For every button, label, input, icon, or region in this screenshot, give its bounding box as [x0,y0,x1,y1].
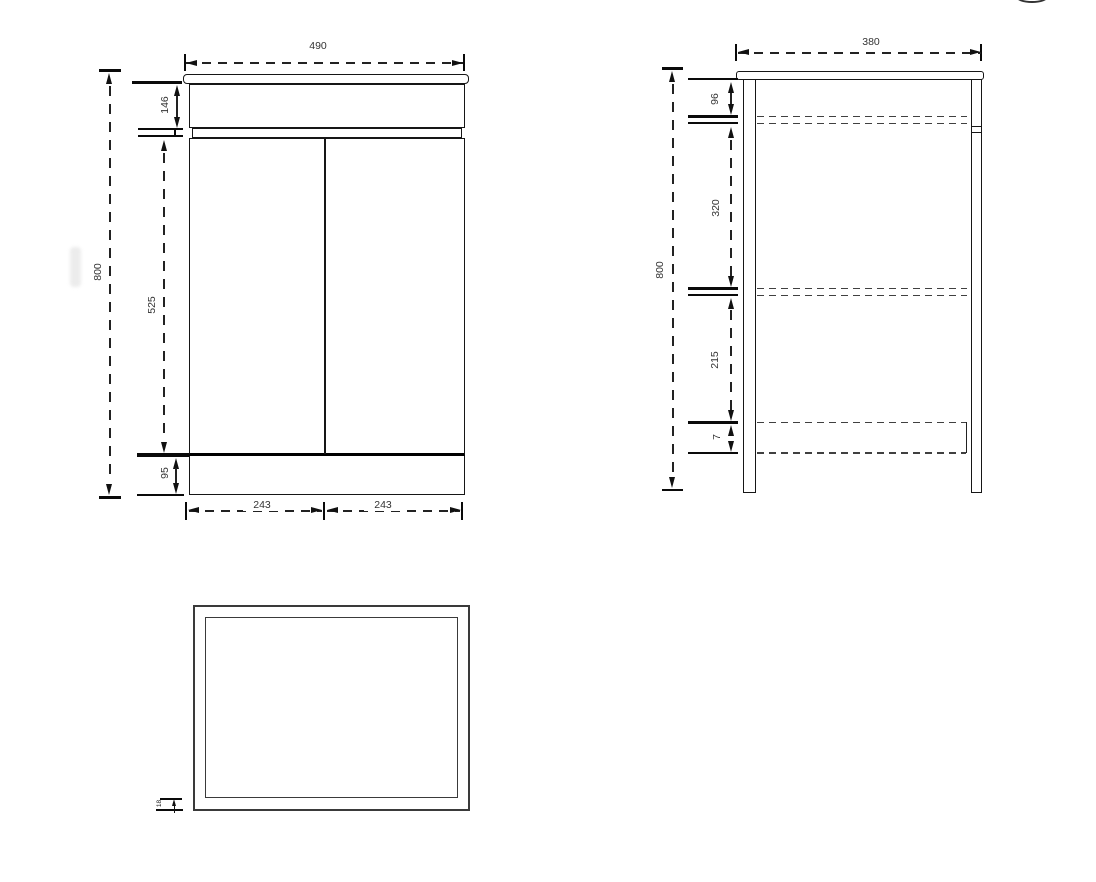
technical-drawing-canvas: 490 800 146 525 95 [0,0,1096,882]
top-view: 18 [0,0,1096,882]
dim-shaft [174,804,176,813]
top-view-inner-frame [205,617,458,798]
top-view-frame-thickness-label: 18 [153,796,167,810]
